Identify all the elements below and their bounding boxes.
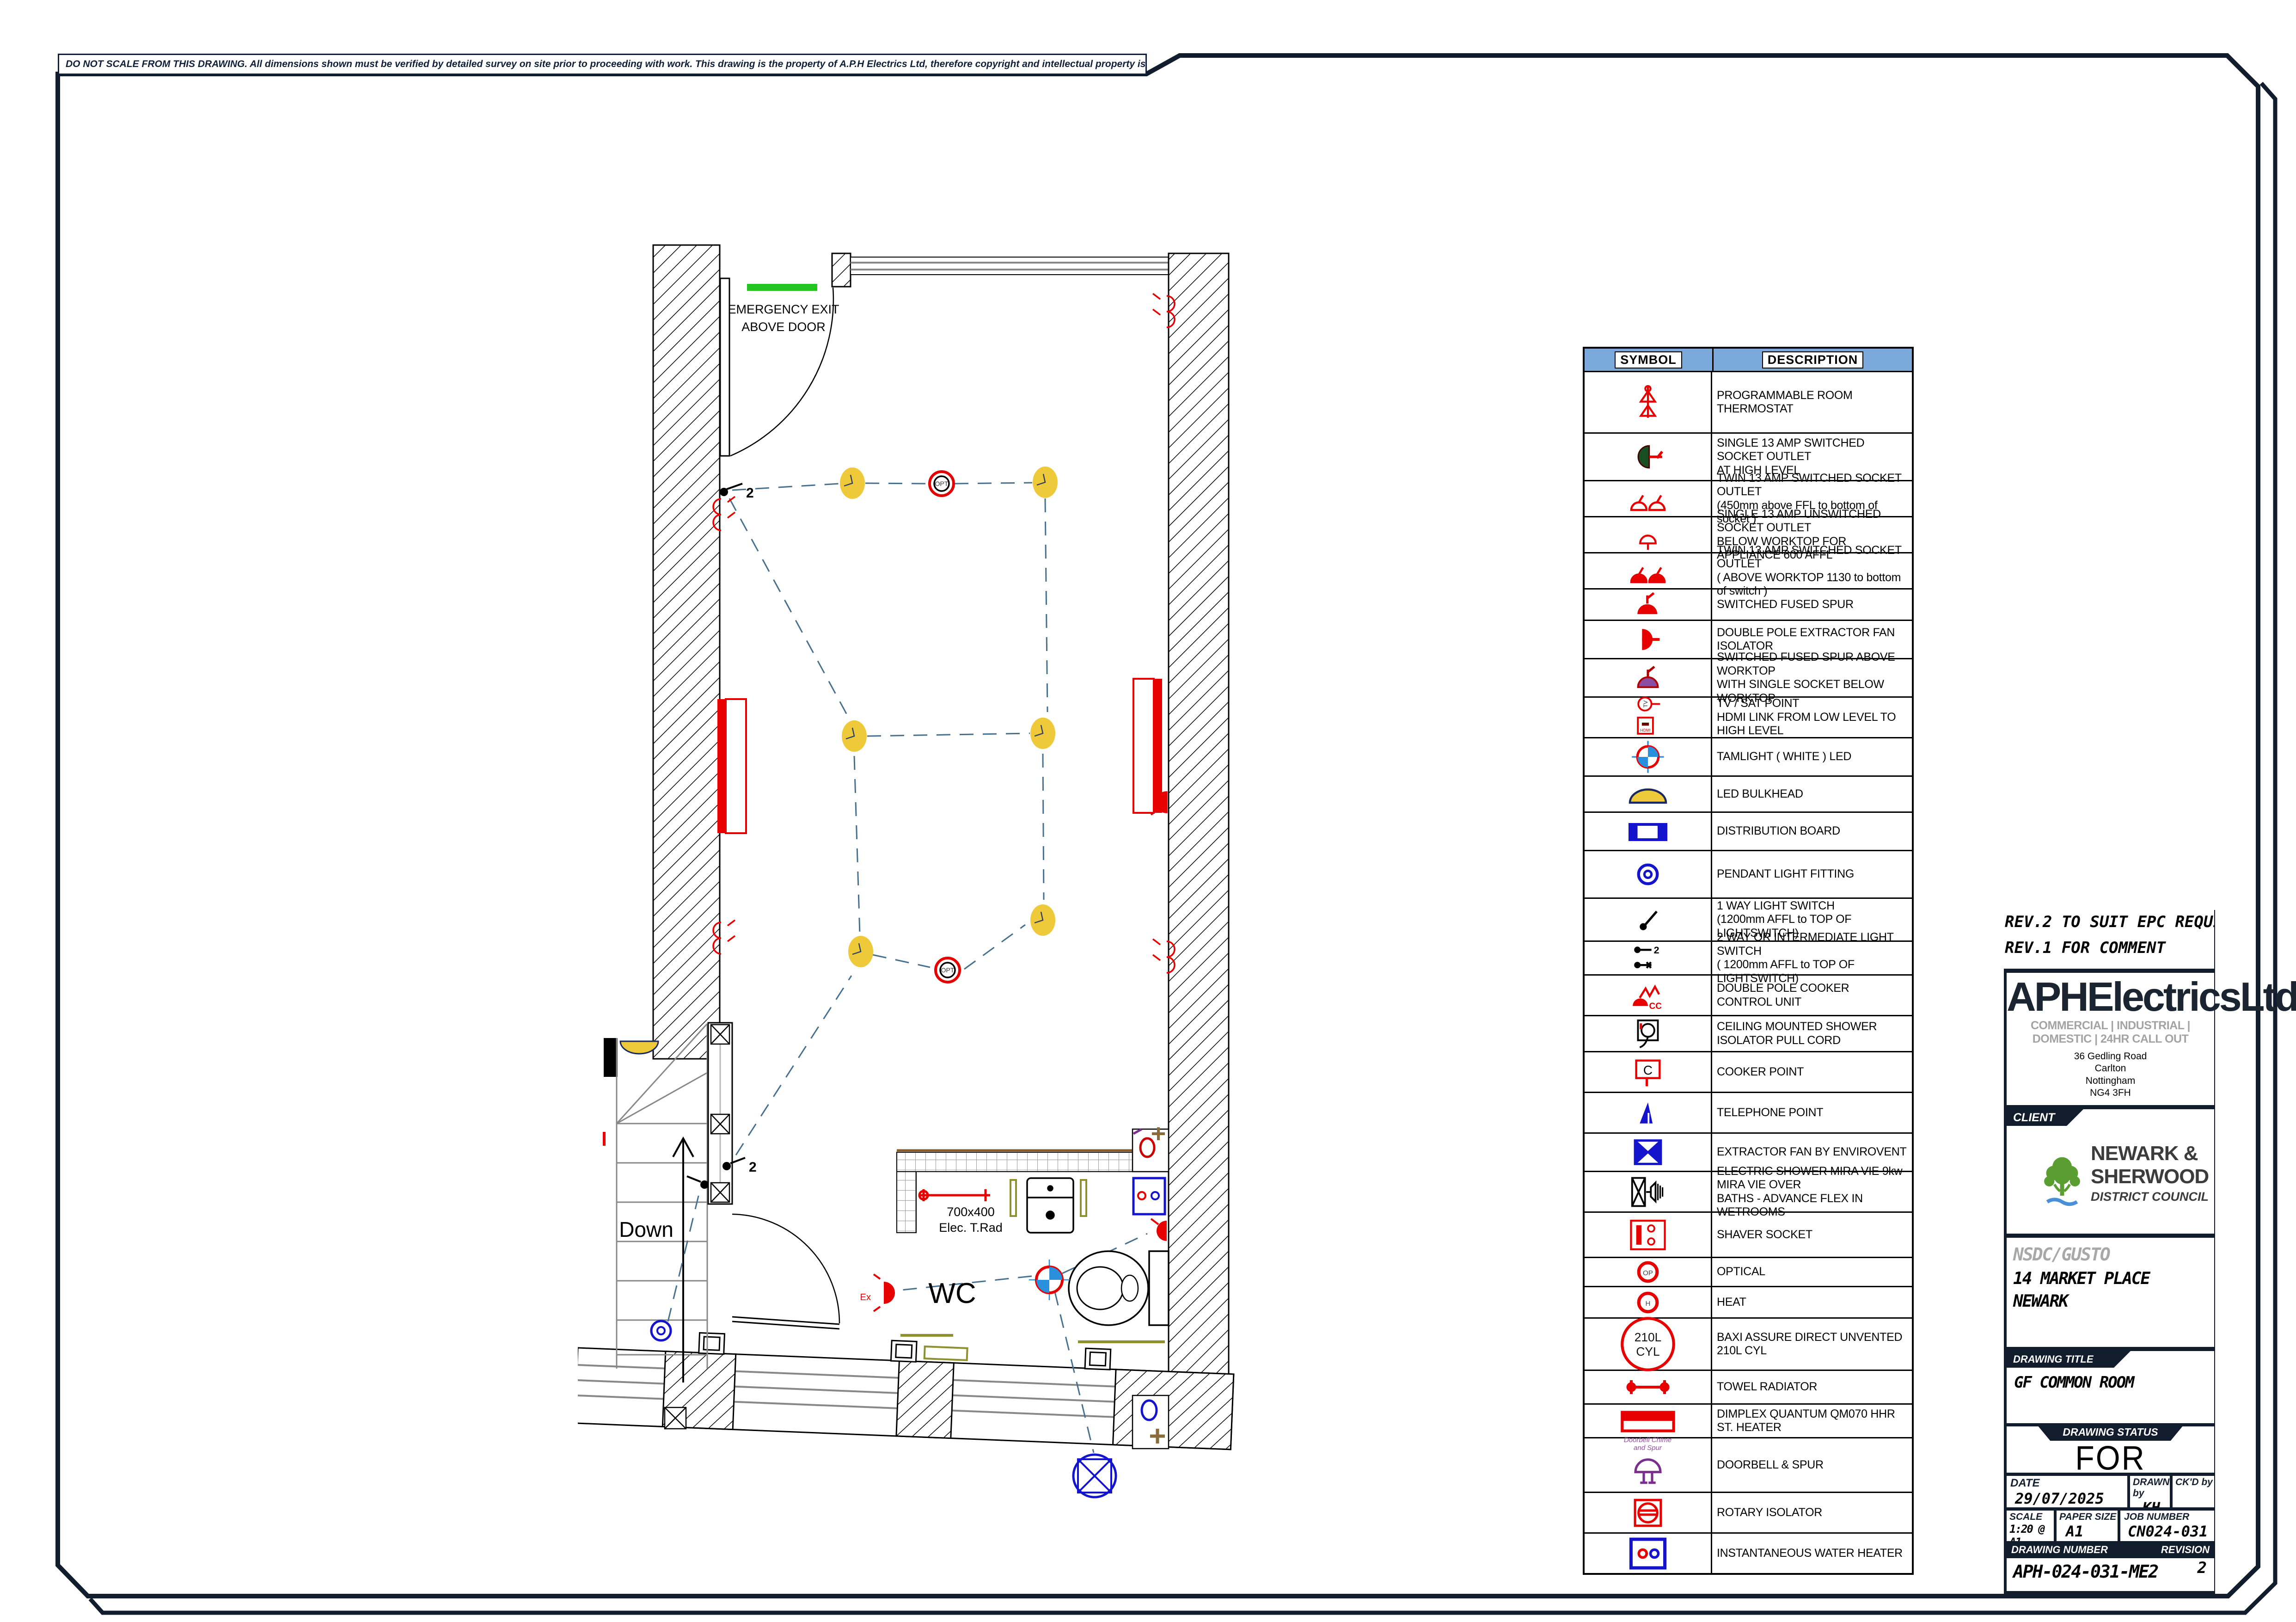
drawing-status-panel: DRAWING STATUS FOR COMMENT [2004,1423,2214,1473]
twin-socket-worktop-icon [1585,553,1712,588]
legend-description: PENDANT LIGHT FITTING [1712,851,1912,897]
radiator-size-label: 700x400 [947,1205,995,1219]
legend-row: CCOOKER POINT [1585,1052,1912,1093]
extractor-fan-isolator-icon: Ex [860,1274,895,1311]
legend-description: ELECTRIC SHOWER MIRA VIE 9kw MIRA VIE OV… [1712,1172,1912,1211]
one-way-switch-icon [687,1176,709,1189]
pendant-light-icon [651,1321,671,1340]
drawing-number-label: DRAWING NUMBER [2011,1544,2108,1556]
wc-room: 700x400 Elec. T.Rad [860,1150,1169,1342]
cooker-control-icon: CC [1585,976,1712,1015]
client-tab: CLIENT [2007,1109,2083,1126]
instant-water-heater-icon [1133,1178,1165,1214]
company-name: APHElectricsLtd [2007,977,2214,1017]
site-ref: NSDC/GUSTO [2013,1244,2214,1265]
legend-description: PROGRAMMABLE ROOM THERMOSTAT [1712,372,1912,432]
bench [925,1346,967,1360]
legend-row: TOWEL RADIATOR [1585,1371,1912,1405]
legend-description: LED BULKHEAD [1712,777,1912,811]
downlight-icon [848,936,873,967]
heat-icon [1140,1138,1154,1157]
downlight-icon [842,720,867,752]
legend-row: SWITCHED FUSED SPUR ABOVE WORKTOPWITH SI… [1585,659,1912,698]
legend-description: DIMPLEX QUANTUM QM070 HHR ST. HEATER [1712,1405,1912,1437]
tree-icon [2039,1138,2085,1226]
legend-description: DOORBELL & SPUR [1712,1438,1912,1492]
dimplex-heater-icon [717,699,746,833]
drawing-title-value: GF COMMON ROOM [2014,1373,2134,1392]
telephone-point-icon [1585,1093,1712,1132]
legend-row: CCDOUBLE POLE COOKER CONTROL UNIT [1585,976,1912,1016]
svg-text:C: C [1643,1063,1652,1077]
paper-size-label: PAPER SIZE [2059,1511,2118,1523]
tamlight-icon [1029,1260,1070,1300]
svg-text:Ex: Ex [860,1292,871,1303]
company-address-3: Nottingham [2007,1075,2214,1087]
down-label: Down [619,1217,673,1241]
twin-socket-icon [1585,481,1712,516]
svg-text:CYL: CYL [1636,1345,1659,1358]
company-address-1: 36 Gedling Road [2007,1051,2214,1063]
job-number-value: CN024-031 [2128,1523,2214,1540]
company-address-2: Carlton [2007,1063,2214,1075]
legend-row: 22 WAY OR INTERMEDIATE LIGHT SWITCH( 120… [1585,942,1912,976]
legend-description: SWITCHED FUSED SPUR [1712,590,1912,620]
legend-row: Doorbell Chimeand SpurDOORBELL & SPUR [1585,1438,1912,1493]
stair-door [732,1214,839,1323]
legend-row: TELEPHONE POINT [1585,1093,1912,1134]
revision-notes: REV.2 TO SUIT EPC REQUIREMENTS 29/ REV.1… [2004,910,2214,969]
two-way-switch-icon: 2 [1585,942,1712,974]
downlight-icon [1030,904,1055,936]
legend-description: DOUBLE POLE COOKER CONTROL UNIT [1712,976,1912,1015]
water-heater-icon [1585,1534,1712,1573]
doorbell-icon: Doorbell Chimeand Spur [1585,1438,1712,1492]
legend-row: PROGRAMMABLE ROOM THERMOSTAT [1585,372,1912,434]
shaver-socket-icon [1585,1213,1712,1257]
tamlight-icon [1585,738,1712,775]
legend-row: SHAVER SOCKET [1585,1213,1912,1258]
downlight-icon [1033,467,1058,498]
legend-description: SWITCHED FUSED SPUR ABOVE WORKTOPWITH SI… [1712,659,1912,696]
downlight-icon [1030,718,1055,749]
distribution-board-icon [1585,813,1712,850]
storage-heaters [717,679,1162,833]
legend-symbol-caption: Doorbell Chimeand Spur [1624,1437,1671,1452]
svg-text:OPT: OPT [935,480,949,487]
extractor-fan-icon [1585,1134,1712,1171]
client-logo-line1: NEWARK & [2091,1143,2209,1164]
svg-text:OP: OP [1643,1269,1653,1277]
legend-row: LED BULKHEAD [1585,777,1912,813]
svg-text:HDMI: HDMI [1640,728,1650,732]
emergency-exit-door: EMERGENCY EXIT ABOVE DOOR [720,278,839,456]
towel-radiator-icon [919,1189,990,1201]
rotary-isolator-icon [1585,1493,1712,1532]
legend-description: OPTICAL [1712,1258,1912,1286]
legend-description: BAXI ASSURE DIRECT UNVENTED 210L CYL [1712,1319,1912,1370]
svg-text:2: 2 [749,1160,757,1175]
legend-description: TWIN 13 AMP SWITCHED SOCKET OUTLET( ABOV… [1712,553,1912,588]
optical-detector-icon: OPT [930,472,954,496]
legend-description: TV / SAT POINTHDMI LINK FROM LOW LEVEL T… [1712,698,1912,737]
stair-arrow-icon [673,1138,693,1382]
client-panel: CLIENT NEWARK & SHERWOOD DISTRICT COUNCI… [2004,1105,2214,1234]
checked-by-label: CK'D by [2175,1477,2214,1488]
led-bulkhead-icon [1585,777,1712,811]
thermostat-icon [1585,372,1712,432]
legend-description: DISTRIBUTION BOARD [1712,813,1912,850]
svg-text:CC: CC [1649,1001,1662,1011]
optical-icon: OP [1585,1258,1712,1286]
symbol-legend: SYMBOL DESCRIPTION PROGRAMMABLE ROOM THE… [1583,347,1914,1575]
scale-label: SCALE [2009,1511,2054,1523]
single-socket-high-icon [1585,434,1712,480]
tv-sat-icon: TVHDMI [1585,698,1712,737]
legend-description: ROTARY ISOLATOR [1712,1493,1912,1532]
toilet [1069,1251,1169,1325]
meta-row-1: DATE 29/07/2025 DRAWN by KH CK'D by [2004,1473,2214,1507]
two-way-switch-icon: 2 [720,484,754,501]
drawing-title-panel: DRAWING TITLE GF COMMON ROOM [2004,1347,2214,1423]
dimplex-heater-icon [1585,1405,1712,1437]
legend-row: DIMPLEX QUANTUM QM070 HHR ST. HEATER [1585,1405,1912,1438]
legend-row: TVHDMITV / SAT POINTHDMI LINK FROM LOW L… [1585,698,1912,738]
emergency-exit-label: EMERGENCY EXIT [728,302,839,316]
staircase: Down [604,1024,707,1382]
envirovent-fan-icon [1073,1455,1116,1497]
towel-radiator-icon [1585,1371,1712,1403]
legend-description: TAMLIGHT ( WHITE ) LED [1712,738,1912,775]
switched-fused-spur-icon [1151,1219,1167,1241]
drawn-by-label: DRAWN by [2133,1477,2170,1499]
heat-icon: H [1585,1287,1712,1317]
svg-text:210L: 210L [1634,1330,1661,1344]
date-label: DATE [2010,1477,2127,1490]
company-panel: APHElectricsLtd COMMERCIAL | INDUSTRIAL … [2004,969,2214,1105]
disclaimer-strip: DO NOT SCALE FROM THIS DRAWING. All dime… [58,54,1147,75]
legend-description: INSTANTANEOUS WATER HEATER [1712,1534,1912,1573]
legend-description: TELEPHONE POINT [1712,1093,1912,1132]
one-way-switch-icon [1585,899,1712,940]
legend-row: TAMLIGHT ( WHITE ) LED [1585,738,1912,777]
floor-plan: EMERGENCY EXIT ABOVE DOOR [578,208,1271,1503]
client-logo-line3: DISTRICT COUNCIL [2091,1191,2209,1203]
legend-description: 2 WAY OR INTERMEDIATE LIGHT SWITCH( 1200… [1712,942,1912,974]
svg-text:OPT: OPT [941,966,955,974]
single-socket-unswitched-icon [1585,517,1712,552]
radiator-name-label: Elec. T.Rad [939,1221,1003,1235]
fan-isolator-icon [1585,621,1712,658]
svg-text:2: 2 [746,485,754,501]
drawing-number-value: APH-024-031-ME2 [2013,1561,2158,1582]
legend-row: SWITCHED FUSED SPUR [1585,590,1912,621]
company-tagline: COMMERCIAL | INDUSTRIAL | DOMESTIC | 24H… [2007,1019,2214,1046]
legend-row: 210LCYLBAXI ASSURE DIRECT UNVENTED 210L … [1585,1319,1912,1371]
legend-description: HEAT [1712,1287,1912,1317]
legend-description: TOWEL RADIATOR [1712,1371,1912,1403]
client-logo-line2: SHERWOOD [2091,1167,2209,1187]
legend-description: COOKER POINT [1712,1052,1912,1092]
drawing-title-tab: DRAWING TITLE [2007,1351,2131,1368]
legend-row: TWIN 13 AMP SWITCHED SOCKET OUTLET( ABOV… [1585,553,1912,590]
electric-shower-icon [1585,1172,1712,1211]
title-block: REV.2 TO SUIT EPC REQUIREMENTS 29/ REV.1… [2004,910,2214,1595]
company-address-4: NG4 3FH [2007,1087,2214,1099]
legend-row: ROTARY ISOLATOR [1585,1493,1912,1534]
paper-size-value: A1 [2066,1523,2118,1540]
legend-header-description: DESCRIPTION [1762,351,1864,369]
legend-description: CEILING MOUNTED SHOWERISOLATOR PULL CORD [1712,1016,1912,1051]
legend-row: INSTANTANEOUS WATER HEATER [1585,1534,1912,1573]
legend-row: PENDANT LIGHT FITTING [1585,851,1912,899]
svg-text:TV: TV [1642,700,1648,707]
sink [1027,1178,1073,1233]
legend-header: SYMBOL DESCRIPTION [1585,349,1912,372]
client-logo: NEWARK & SHERWOOD DISTRICT COUNCIL [2039,1138,2192,1230]
switched-fused-spur-icon [1585,590,1712,620]
optical-icon [1142,1401,1157,1420]
cooker-point-icon: C [1585,1052,1712,1092]
optical-detector-icon: OPT [936,958,960,982]
site-address-2: NEWARK [2013,1292,2214,1311]
drawing-number-panel: DRAWING NUMBER REVISION APH-024-031-ME2 … [2004,1541,2214,1595]
site-address-1: 14 MARKET PLACE [2013,1269,2214,1288]
legend-row: OPOPTICAL [1585,1258,1912,1287]
job-number-label: JOB NUMBER [2124,1511,2214,1523]
legend-header-symbol: SYMBOL [1615,351,1682,369]
drawing-sheet: DO NOT SCALE FROM THIS DRAWING. All dime… [0,0,2296,1622]
legend-row: DISTRIBUTION BOARD [1585,813,1912,851]
shower-pullcord-icon [1585,1016,1712,1051]
svg-text:2: 2 [1653,945,1659,956]
wall-sockets [713,294,1175,973]
revision-label: REVISION [2161,1544,2210,1556]
date-value: 29/07/2025 [2015,1490,2127,1507]
meta-row-2: SCALE 1:20 @ A1 PAPER SIZE A1 JOB NUMBER… [2004,1507,2214,1541]
legend-description: SHAVER SOCKET [1712,1213,1912,1257]
wc-label: WC [928,1278,976,1309]
fused-spur-worktop-icon [1585,659,1712,696]
revision-value: 2 [2198,1559,2207,1577]
emergency-exit-label2: ABOVE DOOR [741,320,826,334]
emergency-exit-sign [747,284,817,291]
legend-row: CEILING MOUNTED SHOWERISOLATOR PULL CORD [1585,1016,1912,1052]
pendant-light-icon [1585,851,1712,897]
svg-text:H: H [1645,1300,1650,1308]
downlight-icon [840,467,865,499]
cylinder-icon: 210LCYL [1585,1319,1712,1370]
legend-row: ELECTRIC SHOWER MIRA VIE 9kw MIRA VIE OV… [1585,1172,1912,1213]
dimplex-heater-icon [1133,679,1162,813]
site-panel: NSDC/GUSTO 14 MARKET PLACE NEWARK [2004,1234,2214,1347]
